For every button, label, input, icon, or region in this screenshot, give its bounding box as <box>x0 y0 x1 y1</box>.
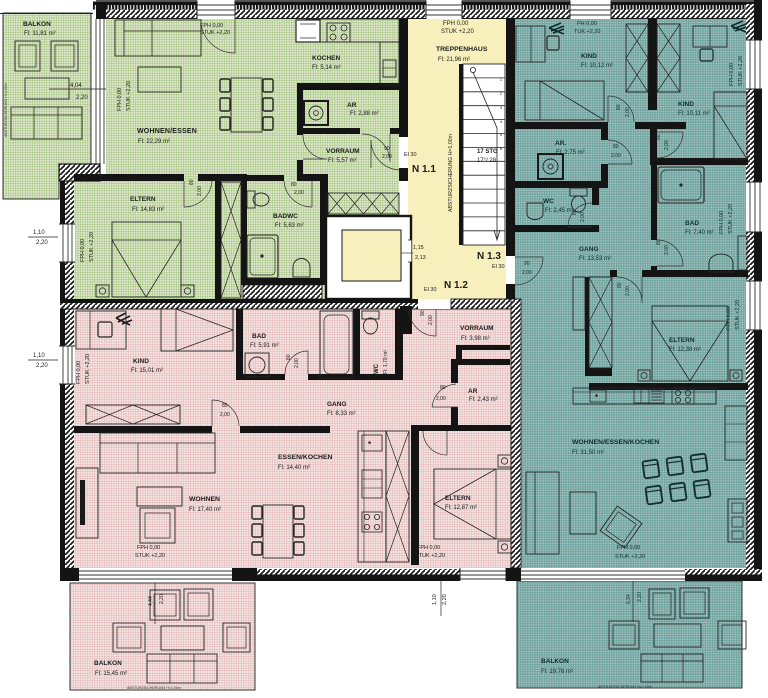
svg-text:VORRAUM: VORRAUM <box>326 148 360 155</box>
svg-text:El 30: El 30 <box>492 264 505 270</box>
svg-text:90: 90 <box>384 146 390 152</box>
svg-text:FPH 0,00: FPH 0,00 <box>200 23 223 29</box>
svg-text:N 1.2: N 1.2 <box>444 280 468 291</box>
svg-text:ELTERN: ELTERN <box>130 196 156 203</box>
svg-text:Fl: 3,98 m²: Fl: 3,98 m² <box>461 336 490 342</box>
svg-text:90: 90 <box>524 261 530 267</box>
svg-text:Fl: 5,91 m²: Fl: 5,91 m² <box>250 343 279 349</box>
svg-text:TUK +2,20: TUK +2,20 <box>574 29 600 35</box>
svg-text:Fl: 22,29 m²: Fl: 22,29 m² <box>138 139 170 145</box>
svg-text:WOHNEN/ESSEN: WOHNEN/ESSEN <box>137 128 197 135</box>
svg-text:BAD: BAD <box>685 220 699 227</box>
svg-text:Fl: 31,50 m²: Fl: 31,50 m² <box>572 450 604 456</box>
svg-text:STUK +2,20: STUK +2,20 <box>738 56 744 86</box>
svg-text:STUK +2,20: STUK +2,20 <box>200 30 230 36</box>
svg-text:Fl: 2,45 m²: Fl: 2,45 m² <box>545 208 574 214</box>
svg-text:2,00: 2,00 <box>428 315 434 325</box>
svg-text:STUK +2,20: STUK +2,20 <box>126 81 132 111</box>
svg-text:Fl: 14,40 m²: Fl: 14,40 m² <box>278 465 310 471</box>
svg-text:1,15: 1,15 <box>413 245 424 251</box>
svg-text:BADWC: BADWC <box>273 213 298 220</box>
svg-text:El 30: El 30 <box>424 287 437 293</box>
svg-text:6,34: 6,34 <box>626 594 632 604</box>
svg-text:N 1.3: N 1.3 <box>477 251 501 262</box>
svg-text:STUK +2,20: STUK +2,20 <box>735 300 741 330</box>
svg-text:Fl: 10,12 m²: Fl: 10,12 m² <box>581 63 613 69</box>
svg-text:AR: AR <box>468 388 478 395</box>
svg-text:WC: WC <box>543 198 554 205</box>
svg-text:ELTERN: ELTERN <box>445 495 471 502</box>
svg-text:17°/ 28: 17°/ 28 <box>477 158 497 164</box>
svg-text:Fl: 5,57 m²: Fl: 5,57 m² <box>328 158 357 164</box>
svg-text:BALKON: BALKON <box>94 660 122 667</box>
svg-text:FPH 0,00: FPH 0,00 <box>719 211 725 234</box>
svg-text:17 STG: 17 STG <box>477 149 498 155</box>
svg-text:80: 80 <box>189 179 195 185</box>
svg-text:FPH 0,00: FPH 0,00 <box>417 545 440 551</box>
svg-text:2,00: 2,00 <box>220 412 230 418</box>
svg-text:80: 80 <box>656 134 662 140</box>
svg-text:STUK +2,20: STUK +2,20 <box>728 204 734 234</box>
svg-text:FPH 0,00: FPH 0,00 <box>76 361 82 384</box>
svg-text:2,00: 2,00 <box>611 153 621 159</box>
svg-text:Fl: 11,81 m²: Fl: 11,81 m² <box>24 31 56 37</box>
svg-text:PH 0,00: PH 0,00 <box>577 21 597 27</box>
svg-text:2,00: 2,00 <box>436 396 446 402</box>
svg-text:1,10: 1,10 <box>33 230 45 236</box>
svg-text:2,20: 2,20 <box>442 594 448 605</box>
svg-text:80: 80 <box>617 282 623 288</box>
svg-text:AR: AR <box>347 102 357 109</box>
svg-text:Fl: 5,63 m²: Fl: 5,63 m² <box>275 223 304 229</box>
svg-text:2,20: 2,20 <box>637 592 643 602</box>
svg-text:VORRAUM: VORRAUM <box>460 325 494 332</box>
svg-text:FPH 0,00: FPH 0,00 <box>117 88 123 111</box>
svg-text:2,20: 2,20 <box>159 594 165 604</box>
svg-text:80: 80 <box>286 354 292 360</box>
svg-text:TREPPENHAUS: TREPPENHAUS <box>436 46 488 53</box>
svg-text:WOHNEN/ESSEN/KOCHEN: WOHNEN/ESSEN/KOCHEN <box>572 439 659 446</box>
svg-text:Fl: 15,01 m²: Fl: 15,01 m² <box>131 368 163 374</box>
svg-text:Fl: 14,83 m²: Fl: 14,83 m² <box>132 207 164 213</box>
svg-text:2,00: 2,00 <box>664 140 670 150</box>
svg-text:Fl: 17,40 m²: Fl: 17,40 m² <box>189 507 221 513</box>
svg-text:Fl: 13,53 m²: Fl: 13,53 m² <box>579 256 611 262</box>
svg-text:GANG: GANG <box>579 246 599 253</box>
svg-text:Fl: 15,45 m²: Fl: 15,45 m² <box>95 671 127 677</box>
svg-text:4,44: 4,44 <box>148 596 154 606</box>
svg-text:2,00: 2,00 <box>664 245 670 255</box>
svg-text:80: 80 <box>222 403 228 409</box>
svg-text:2,20: 2,20 <box>76 95 88 101</box>
svg-text:Fl: 21,96 m²: Fl: 21,96 m² <box>438 57 470 63</box>
svg-text:KIND: KIND <box>678 101 694 108</box>
svg-text:STUK +2,20: STUK +2,20 <box>85 354 91 384</box>
svg-text:FPH 0,00: FPH 0,00 <box>443 21 469 27</box>
svg-text:Fl: 2,88 m²: Fl: 2,88 m² <box>350 111 379 117</box>
svg-text:WC: WC <box>374 363 380 374</box>
svg-text:STUK +2,20: STUK +2,20 <box>135 553 165 559</box>
svg-text:KOCHEN: KOCHEN <box>312 55 340 62</box>
svg-text:FPH 0,00: FPH 0,00 <box>729 63 735 86</box>
svg-text:80: 80 <box>613 144 619 150</box>
svg-text:80: 80 <box>572 209 578 215</box>
svg-text:1,10: 1,10 <box>33 353 45 359</box>
svg-text:2,00: 2,00 <box>294 358 300 368</box>
svg-text:ABSTURZSICHERUNG H=1,00m: ABSTURZSICHERUNG H=1,00m <box>127 686 181 690</box>
svg-text:Fl: 12,87 m²: Fl: 12,87 m² <box>445 505 477 511</box>
svg-text:2,13: 2,13 <box>415 255 426 261</box>
svg-text:STUK +2,20: STUK +2,20 <box>615 554 645 560</box>
svg-text:ABSTURZSICHERUNG H=1,00m: ABSTURZSICHERUNG H=1,00m <box>598 685 652 689</box>
svg-text:FPH 0,00: FPH 0,00 <box>726 307 732 330</box>
svg-text:4,04: 4,04 <box>70 83 82 89</box>
svg-text:El 30: El 30 <box>404 152 417 158</box>
svg-text:ELTERN: ELTERN <box>669 337 695 344</box>
svg-text:1,10: 1,10 <box>432 594 438 605</box>
svg-text:Fl: 2,43 m²: Fl: 2,43 m² <box>469 397 498 403</box>
svg-text:Fl: 8,33 m²: Fl: 8,33 m² <box>327 411 356 417</box>
svg-text:2,00: 2,00 <box>522 270 532 276</box>
svg-text:FPH 0,00: FPH 0,00 <box>617 545 640 551</box>
svg-text:80: 80 <box>440 385 446 391</box>
svg-text:80: 80 <box>291 182 297 188</box>
svg-text:STUK +2,20: STUK +2,20 <box>415 553 445 559</box>
svg-text:Fl: 5,14 m²: Fl: 5,14 m² <box>312 65 341 71</box>
svg-text:BALKON: BALKON <box>23 21 51 28</box>
svg-text:WOHNEN: WOHNEN <box>189 496 220 503</box>
svg-text:N 1.1: N 1.1 <box>412 164 436 175</box>
svg-text:GANG: GANG <box>327 401 347 408</box>
svg-text:2,00: 2,00 <box>294 190 304 196</box>
svg-text:Fl: 2,75 m²: Fl: 2,75 m² <box>556 150 585 156</box>
svg-text:Fl: 7,40 m²: Fl: 7,40 m² <box>685 230 714 236</box>
svg-text:STUK +2,20: STUK +2,20 <box>441 29 475 35</box>
svg-text:ABSTURZSICHERUNG H=1,00m: ABSTURZSICHERUNG H=1,00m <box>4 83 8 137</box>
svg-text:Fl: 19,76 m²: Fl: 19,76 m² <box>541 669 573 675</box>
svg-text:AR.: AR. <box>555 140 566 147</box>
svg-text:Fl: 1,79 m²: Fl: 1,79 m² <box>383 350 389 374</box>
svg-text:2,00: 2,00 <box>625 286 631 296</box>
svg-text:FPH 0,00: FPH 0,00 <box>80 239 86 262</box>
svg-text:80: 80 <box>656 239 662 245</box>
svg-text:2,20: 2,20 <box>36 363 48 369</box>
svg-text:ABSTURZSICHERUNG H=1,00m: ABSTURZSICHERUNG H=1,00m <box>448 134 454 212</box>
svg-text:BAD: BAD <box>252 333 266 340</box>
svg-text:2,00: 2,00 <box>625 107 631 117</box>
svg-text:80: 80 <box>616 104 622 110</box>
svg-text:STUK +2,20: STUK +2,20 <box>89 232 95 262</box>
svg-text:FPH 0,00: FPH 0,00 <box>137 545 160 551</box>
svg-text:Fl: 10,11 m²: Fl: 10,11 m² <box>678 111 710 117</box>
svg-text:2,00: 2,00 <box>382 154 392 160</box>
svg-text:KIND: KIND <box>581 53 597 60</box>
svg-text:2,00: 2,00 <box>580 212 586 222</box>
svg-text:90: 90 <box>420 310 426 316</box>
svg-text:Fl: 12,38 m²: Fl: 12,38 m² <box>669 347 701 353</box>
svg-text:KIND: KIND <box>133 358 149 365</box>
svg-text:2,20: 2,20 <box>36 240 48 246</box>
svg-text:ESSEN/KOCHEN: ESSEN/KOCHEN <box>278 454 332 461</box>
svg-text:2,00: 2,00 <box>197 186 203 196</box>
svg-text:BALKON: BALKON <box>541 658 569 665</box>
